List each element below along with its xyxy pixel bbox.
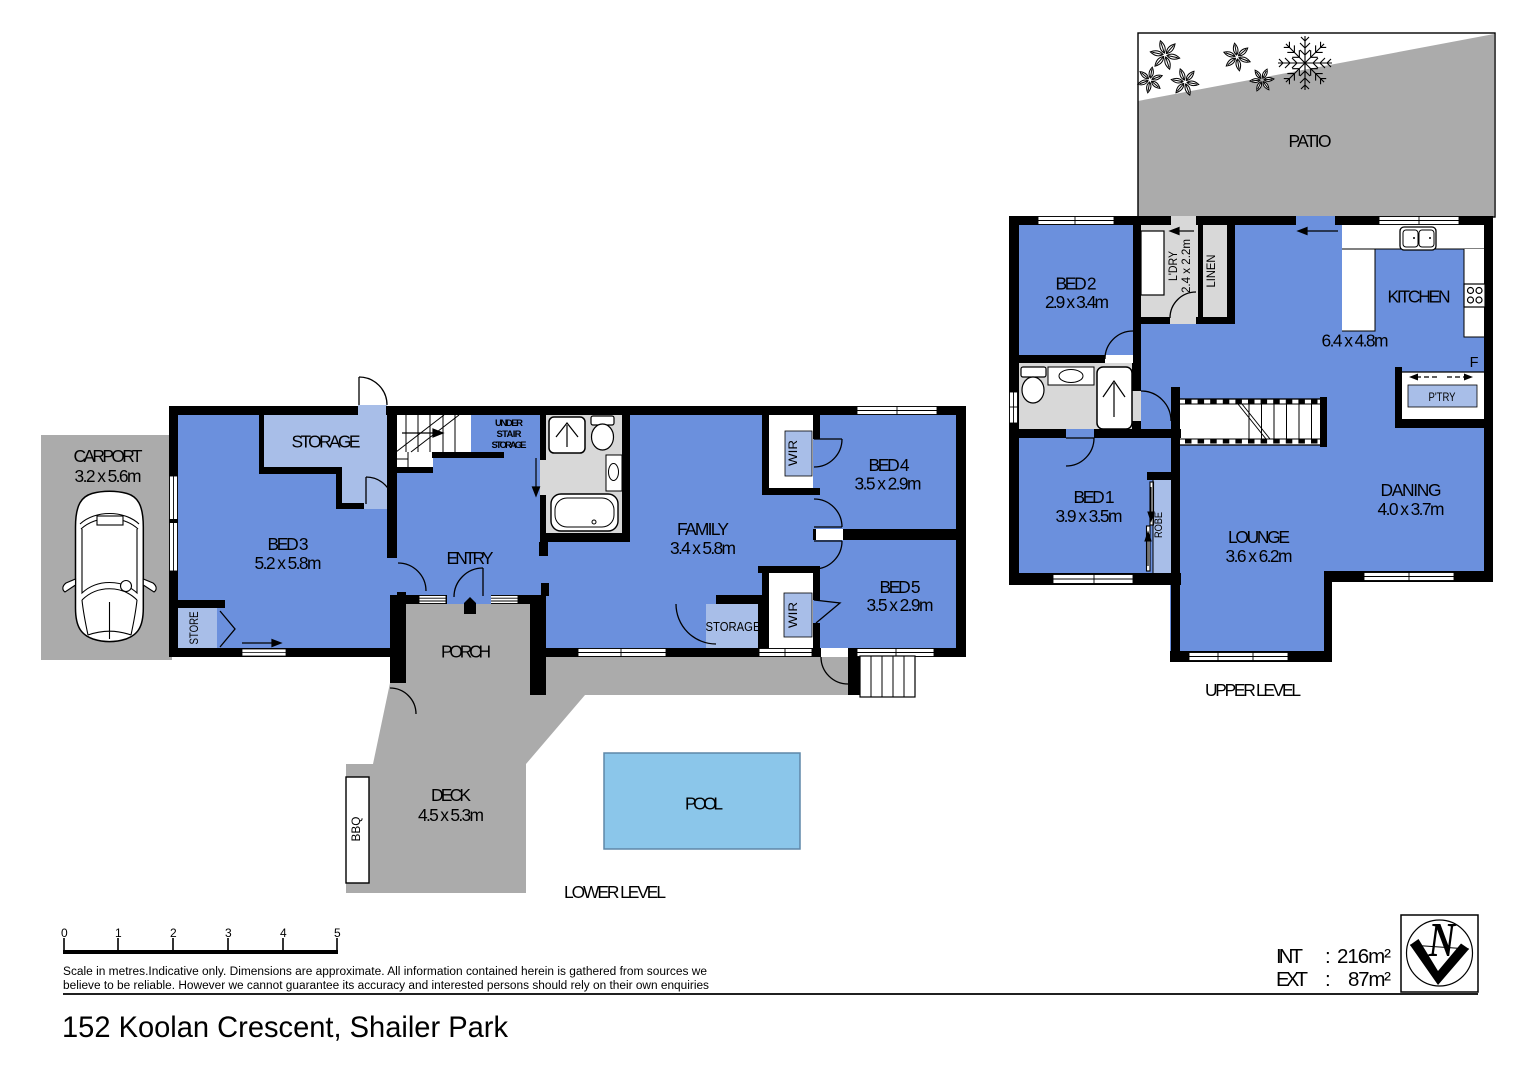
- svg-text:3.2 x 5.6m: 3.2 x 5.6m: [75, 466, 142, 486]
- svg-text:STORAGE: STORAGE: [292, 432, 361, 452]
- svg-text:UNDER: UNDER: [495, 418, 523, 429]
- svg-text:PORCH: PORCH: [441, 642, 491, 662]
- svg-text:LOWER LEVEL: LOWER LEVEL: [564, 882, 666, 902]
- svg-text:WIR: WIR: [788, 602, 800, 628]
- svg-text:4.5 x 5.3m: 4.5 x 5.3m: [418, 805, 484, 825]
- svg-text:STORE: STORE: [187, 612, 201, 645]
- svg-text:ROBE: ROBE: [1153, 512, 1165, 538]
- svg-text::: :: [1325, 968, 1331, 991]
- svg-text:STAIR: STAIR: [497, 429, 522, 440]
- svg-text:EXT: EXT: [1276, 968, 1308, 991]
- svg-text:152 Koolan Crescent, Shailer P: 152 Koolan Crescent, Shailer Park: [62, 1011, 509, 1044]
- svg-text:216m²: 216m²: [1337, 945, 1391, 968]
- svg-text:Scale in metres.Indicative onl: Scale in metres.Indicative only. Dimensi…: [63, 966, 707, 978]
- svg-text:4.0 x 3.7m: 4.0 x 3.7m: [1378, 499, 1445, 519]
- svg-text:3.5 x 2.9m: 3.5 x 2.9m: [867, 595, 934, 615]
- svg-text:POOL: POOL: [685, 794, 723, 814]
- svg-text:KITCHEN: KITCHEN: [1388, 287, 1451, 307]
- svg-text:1: 1: [115, 926, 122, 940]
- svg-text:5: 5: [334, 926, 341, 940]
- svg-text:L'DRY: L'DRY: [1166, 251, 1180, 281]
- svg-text:UPPER LEVEL: UPPER LEVEL: [1205, 680, 1301, 700]
- svg-text:STORAGE: STORAGE: [492, 440, 527, 451]
- svg-text:2.9 x 3.4m: 2.9 x 3.4m: [1045, 292, 1109, 312]
- svg-text:LOUNGE: LOUNGE: [1228, 527, 1290, 547]
- svg-text:DANING: DANING: [1381, 480, 1442, 500]
- svg-text:BED 4: BED 4: [869, 455, 910, 475]
- svg-text:BBQ: BBQ: [351, 816, 363, 841]
- svg-text:3.5 x 2.9m: 3.5 x 2.9m: [855, 474, 922, 494]
- svg-text:F: F: [1470, 355, 1479, 371]
- svg-text:BED 2: BED 2: [1056, 274, 1097, 294]
- svg-text:5.2 x 5.8m: 5.2 x 5.8m: [255, 553, 322, 573]
- svg-text:INT: INT: [1276, 945, 1303, 968]
- svg-text:believe to be reliable. Howeve: believe to be reliable. However we canno…: [63, 980, 709, 992]
- svg-text:WIR: WIR: [788, 440, 800, 466]
- svg-text:P'TRY: P'TRY: [1429, 392, 1456, 404]
- svg-text:BED 3: BED 3: [268, 534, 309, 554]
- svg-text:3.6 x 6.2m: 3.6 x 6.2m: [1226, 546, 1293, 566]
- svg-text:0: 0: [61, 926, 68, 940]
- svg-text:BED 5: BED 5: [880, 577, 921, 597]
- svg-text:2.4 x 2.2m: 2.4 x 2.2m: [1179, 239, 1193, 293]
- svg-text:3.4 x 5.8m: 3.4 x 5.8m: [670, 538, 736, 558]
- svg-text::: :: [1325, 945, 1331, 968]
- svg-text:PATIO: PATIO: [1289, 131, 1332, 151]
- svg-text:CARPORT: CARPORT: [74, 446, 143, 466]
- svg-text:DECK: DECK: [431, 785, 471, 805]
- svg-text:6.4 x 4.8m: 6.4 x 4.8m: [1322, 331, 1389, 351]
- svg-text:BED 1: BED 1: [1074, 487, 1115, 507]
- svg-text:ENTRY: ENTRY: [447, 548, 494, 568]
- svg-text:4: 4: [280, 926, 287, 940]
- svg-text:2: 2: [170, 926, 177, 940]
- svg-text:FAMILY: FAMILY: [677, 519, 729, 539]
- svg-text:LINEN: LINEN: [1204, 255, 1218, 288]
- svg-text:87m²: 87m²: [1348, 968, 1391, 991]
- svg-text:STORAGE: STORAGE: [706, 620, 761, 634]
- svg-text:3: 3: [225, 926, 232, 940]
- svg-text:3.9 x 3.5m: 3.9 x 3.5m: [1056, 506, 1123, 526]
